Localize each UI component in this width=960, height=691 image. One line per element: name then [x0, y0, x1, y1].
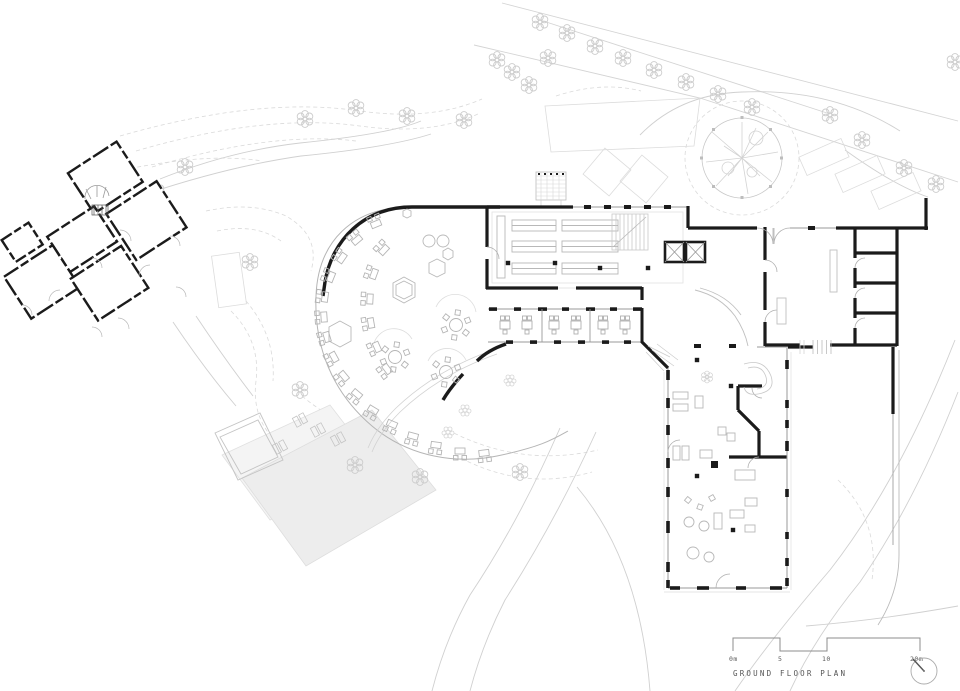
tree-icon [292, 382, 308, 399]
tree-icon [489, 52, 505, 69]
big-tree-icon [700, 116, 783, 199]
tree-icon [177, 159, 193, 176]
shrub-icon [459, 405, 471, 416]
scale-label-10: 10 [822, 655, 831, 663]
north-glazing [573, 205, 836, 230]
elevator-shafts [665, 242, 705, 262]
tree-icon [521, 77, 537, 94]
annex-building [0, 135, 203, 350]
round-table-icon [441, 310, 471, 340]
tree-icon [822, 107, 838, 124]
scale-label-20: 20m [910, 655, 923, 663]
floor-plan-sheet: 0m 5 10 20m GROUND FLOOR PLAN [0, 0, 960, 691]
tree-icon [678, 74, 694, 91]
tree-icon [928, 176, 944, 193]
hall-stair [612, 214, 648, 250]
tree-icon [297, 111, 313, 128]
site-landscape-layer [96, 3, 960, 691]
scale-label-5: 5 [778, 655, 782, 663]
tree-icon [587, 38, 603, 55]
planters [329, 209, 453, 347]
retaining-wall [878, 350, 899, 625]
tree-icon [896, 160, 912, 177]
title-block: 0m 5 10 20m GROUND FLOOR PLAN [729, 638, 937, 684]
tree-icon [559, 25, 575, 42]
tree-icon [947, 54, 960, 71]
round-table-icon [380, 342, 410, 372]
tree-icon [615, 50, 631, 67]
pool-terrace [215, 405, 436, 566]
walls [486, 198, 928, 457]
facade-piers [666, 344, 789, 590]
tree-icon [456, 112, 472, 129]
lounge-wing [664, 344, 791, 592]
floor-plan-drawing: 0m 5 10 20m GROUND FLOOR PLAN [0, 0, 960, 691]
shrub-icon [504, 375, 516, 386]
plan-title: GROUND FLOOR PLAN [733, 669, 847, 678]
main-hall-interior [492, 212, 683, 283]
main-building [486, 172, 928, 625]
scale-bar [733, 638, 920, 651]
plant-icon [702, 371, 713, 383]
trees [148, 14, 960, 486]
bar-counter [744, 363, 772, 395]
tree-icon [504, 64, 520, 81]
tree-icon [348, 100, 364, 117]
north-arrow-icon [911, 658, 937, 684]
shrub-icon [442, 427, 454, 438]
tree-icon [399, 108, 415, 125]
scale-label-0: 0m [729, 655, 738, 663]
garden-paths [149, 92, 958, 691]
tree-icon [242, 254, 258, 271]
tree-icon [512, 464, 528, 481]
tree-icon [744, 99, 760, 116]
dining-rooms-row [488, 307, 642, 344]
table-scallops [374, 294, 476, 361]
service-structure [536, 172, 566, 207]
tree-icon [540, 50, 556, 67]
tree-icon [646, 62, 662, 79]
tree-icon [854, 132, 870, 149]
trellis-lines [646, 344, 678, 371]
column [711, 461, 718, 468]
